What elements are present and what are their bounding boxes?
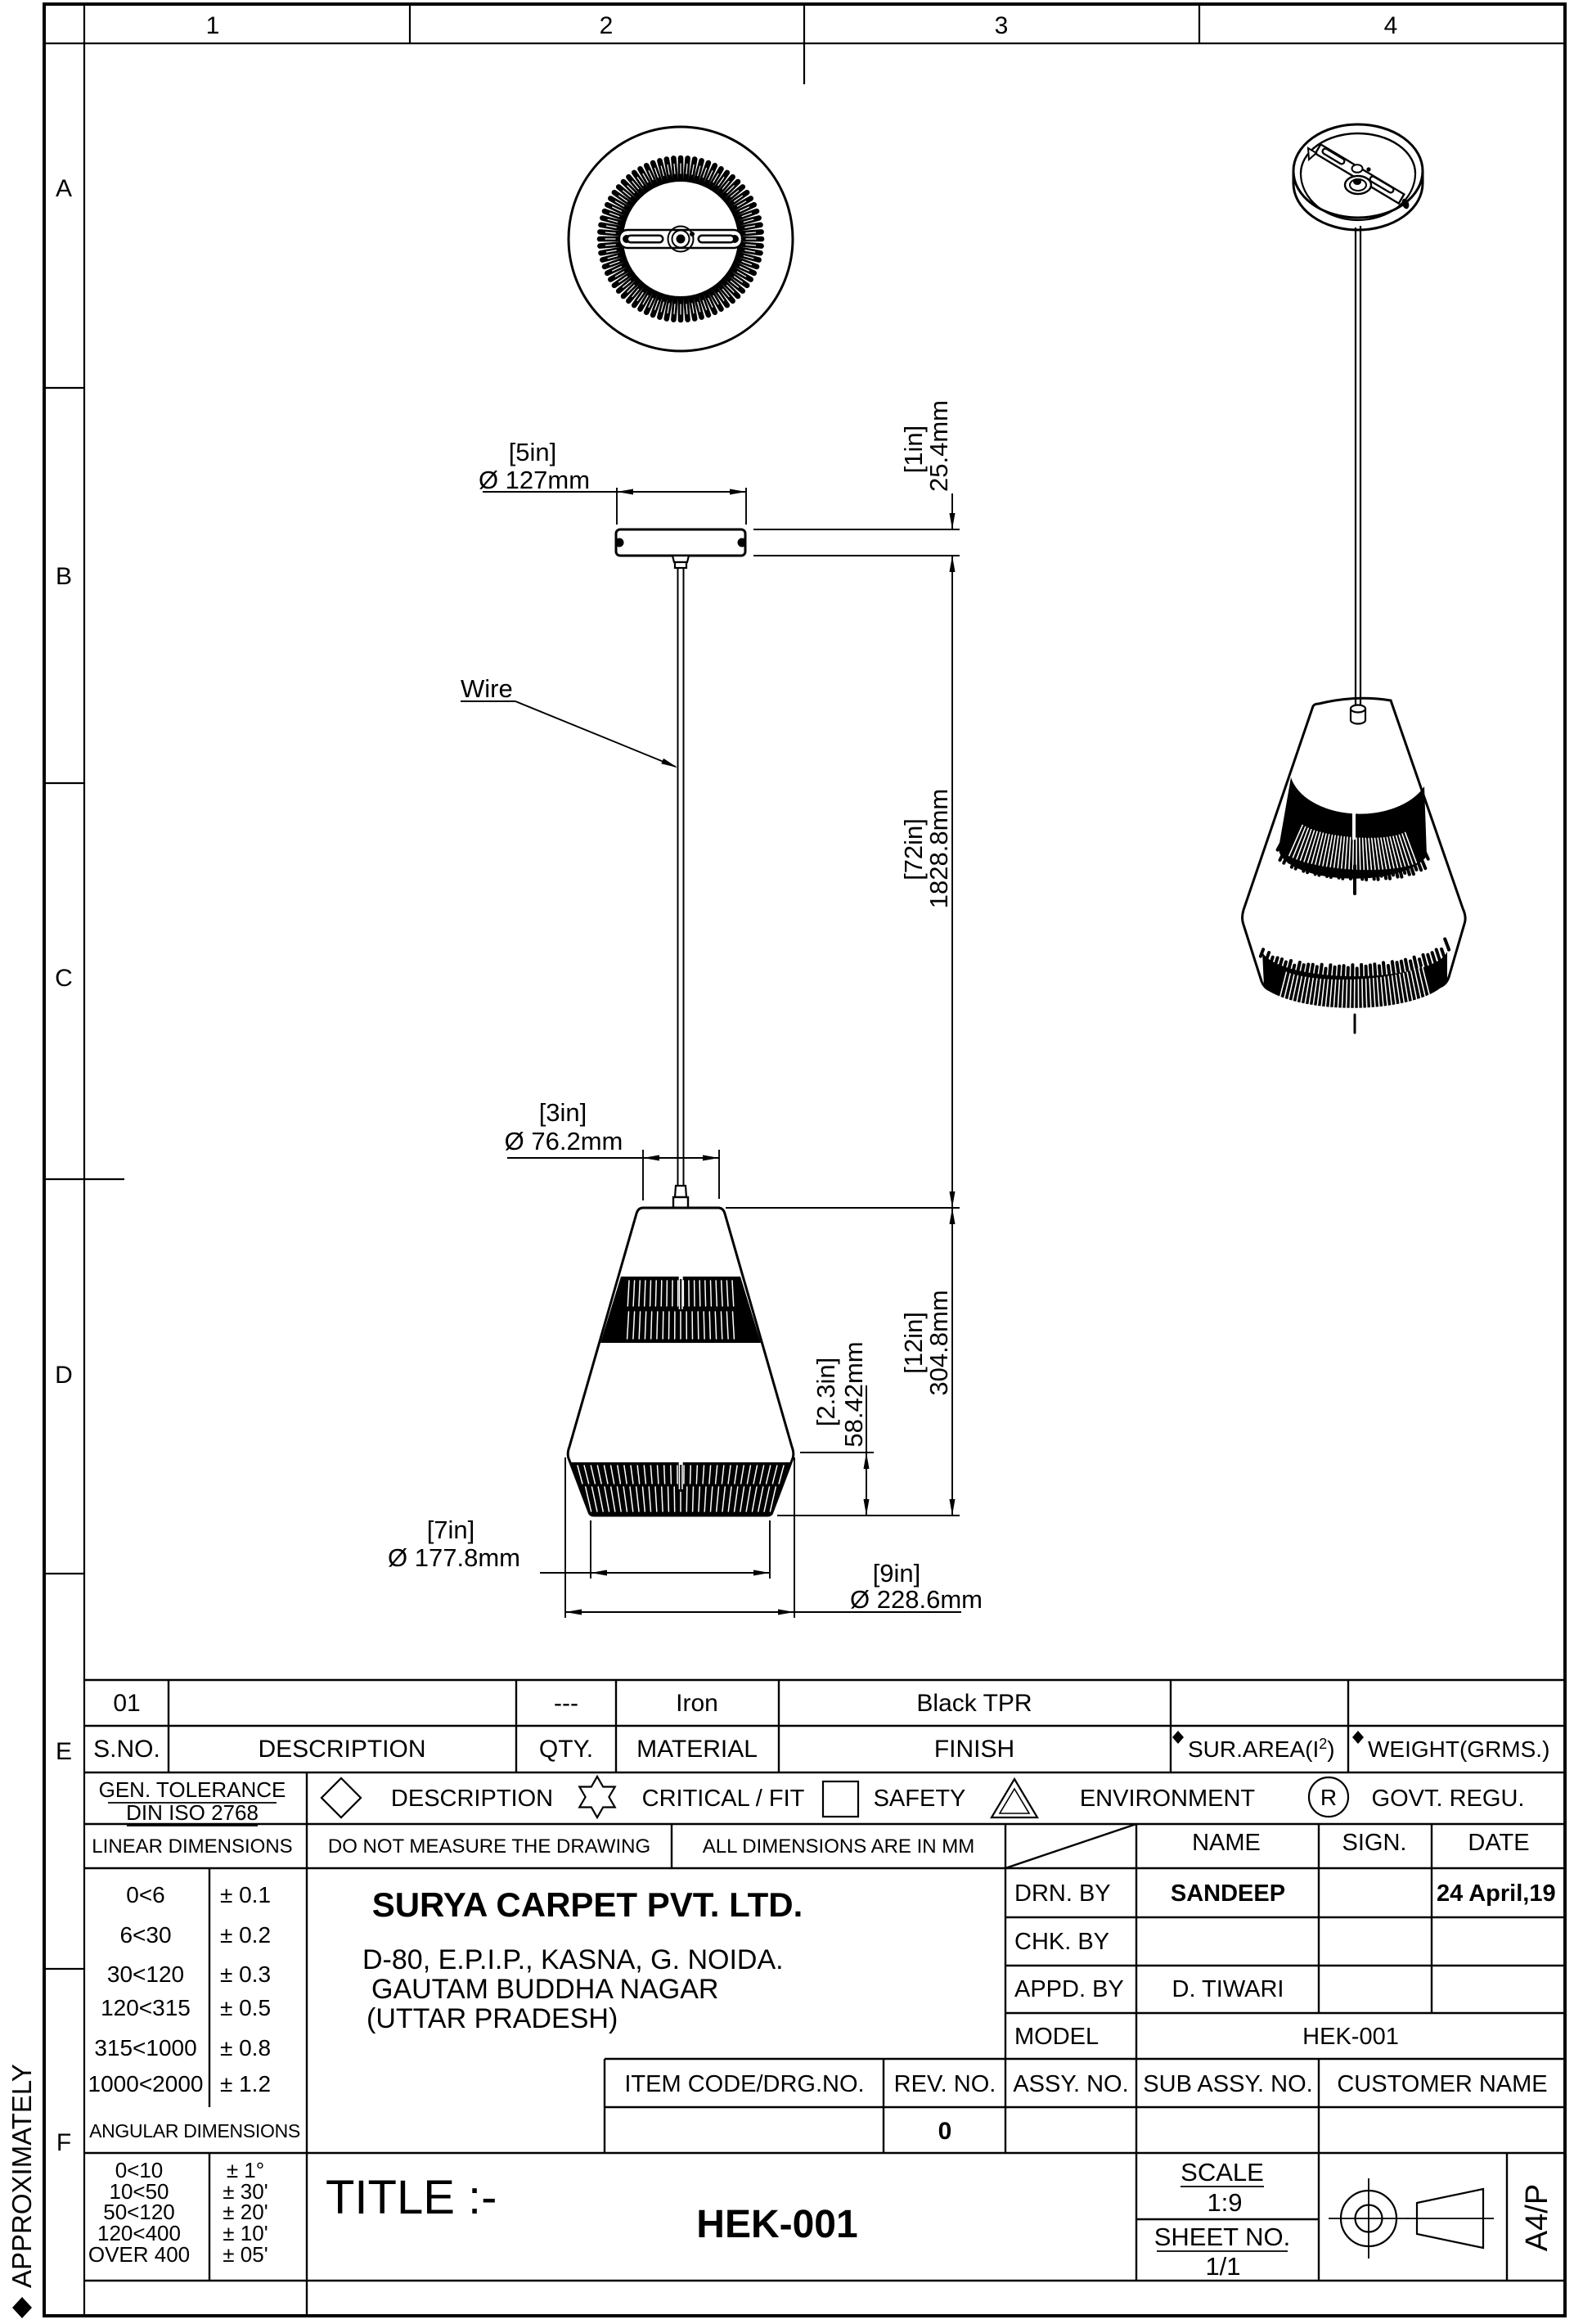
svg-text:R: R <box>1320 1785 1337 1810</box>
svg-text:1:9: 1:9 <box>1207 2188 1242 2217</box>
svg-text:1000<2000: 1000<2000 <box>88 2071 204 2097</box>
svg-text:± 1.2: ± 1.2 <box>220 2071 271 2097</box>
svg-text:GEN. TOLERANCE: GEN. TOLERANCE <box>99 1777 286 1802</box>
svg-text:LINEAR DIMENSIONS: LINEAR DIMENSIONS <box>92 1835 292 1858</box>
svg-text:---: --- <box>554 1690 578 1717</box>
svg-text:DESCRIPTION: DESCRIPTION <box>391 1786 553 1812</box>
svg-text:GAUTAM BUDDHA NAGAR: GAUTAM BUDDHA NAGAR <box>371 1974 718 2005</box>
svg-text:CUSTOMER NAME: CUSTOMER NAME <box>1337 2071 1547 2097</box>
svg-text:WEIGHT(GRMS.): WEIGHT(GRMS.) <box>1368 1736 1549 1762</box>
svg-text:DRN. BY: DRN. BY <box>1014 1880 1111 1907</box>
svg-text:Wire: Wire <box>461 674 513 703</box>
svg-text:± 05': ± 05' <box>223 2242 268 2267</box>
svg-text:CRITICAL / FIT: CRITICAL / FIT <box>642 1786 805 1812</box>
svg-text:SUR.AREA(I2): SUR.AREA(I2) <box>1188 1736 1335 1762</box>
svg-text:MODEL: MODEL <box>1014 2024 1099 2050</box>
svg-text:304.8mm: 304.8mm <box>924 1290 953 1395</box>
svg-text:ASSY. NO.: ASSY. NO. <box>1013 2071 1128 2097</box>
svg-text:[9in]: [9in] <box>873 1559 921 1588</box>
svg-text:SCALE: SCALE <box>1181 2158 1264 2187</box>
svg-text:01: 01 <box>113 1690 140 1717</box>
svg-text:Iron: Iron <box>676 1690 718 1717</box>
svg-text:30<120: 30<120 <box>107 1961 184 1987</box>
svg-text:GOVT. REGU.: GOVT. REGU. <box>1372 1786 1525 1812</box>
svg-text:SHEET NO.: SHEET NO. <box>1154 2223 1291 2251</box>
svg-text:Black TPR: Black TPR <box>916 1690 1032 1717</box>
svg-text:Ø 177.8mm: Ø 177.8mm <box>388 1543 520 1572</box>
svg-text:QTY.: QTY. <box>539 1736 593 1763</box>
svg-text:B: B <box>56 563 72 590</box>
svg-text:[5in]: [5in] <box>509 438 557 466</box>
svg-text:0<6: 0<6 <box>126 1882 165 1907</box>
svg-text:CHK. BY: CHK. BY <box>1014 1929 1109 1955</box>
svg-text:F: F <box>56 2129 71 2156</box>
svg-text:SAFETY: SAFETY <box>874 1786 966 1812</box>
svg-text:24 April,19: 24 April,19 <box>1437 1880 1556 1907</box>
svg-text:[12in]: [12in] <box>899 1312 928 1374</box>
svg-text:[2.3in]: [2.3in] <box>812 1358 840 1426</box>
svg-text:FINISH: FINISH <box>934 1736 1014 1763</box>
svg-text:3: 3 <box>995 12 1009 39</box>
svg-text:Ø 127mm: Ø 127mm <box>479 466 590 494</box>
svg-text:ANGULAR DIMENSIONS: ANGULAR DIMENSIONS <box>89 2120 300 2142</box>
svg-text:4: 4 <box>1384 12 1398 39</box>
svg-text:± 0.3: ± 0.3 <box>220 1961 271 1987</box>
svg-text:1828.8mm: 1828.8mm <box>924 789 953 908</box>
svg-text:ITEM CODE/DRG.NO.: ITEM CODE/DRG.NO. <box>624 2071 864 2097</box>
svg-text:25.4mm: 25.4mm <box>924 400 953 492</box>
svg-text:D-80, E.P.I.P., KASNA, G. NOID: D-80, E.P.I.P., KASNA, G. NOIDA. <box>362 1944 784 1975</box>
svg-text:A: A <box>56 175 72 202</box>
svg-text:± 0.5: ± 0.5 <box>220 1995 271 2020</box>
svg-text:DO NOT MEASURE THE DRAWING: DO NOT MEASURE THE DRAWING <box>328 1835 650 1858</box>
svg-text:TITLE :-: TITLE :- <box>326 2171 497 2224</box>
svg-text:SIGN.: SIGN. <box>1342 1830 1407 1856</box>
svg-text:SANDEEP: SANDEEP <box>1171 1880 1285 1907</box>
svg-text:SUB ASSY. NO.: SUB ASSY. NO. <box>1143 2071 1312 2097</box>
svg-text:120<315: 120<315 <box>101 1995 191 2020</box>
svg-text:[7in]: [7in] <box>427 1516 475 1544</box>
svg-text:DESCRIPTION: DESCRIPTION <box>258 1736 425 1763</box>
svg-text:OVER 400: OVER 400 <box>88 2242 190 2267</box>
svg-text:Ø 228.6mm: Ø 228.6mm <box>850 1585 983 1614</box>
svg-text:D: D <box>55 1362 73 1389</box>
svg-text:2: 2 <box>600 12 614 39</box>
svg-text:APPD. BY: APPD. BY <box>1014 1976 1124 2002</box>
svg-text:[72in]: [72in] <box>899 818 928 881</box>
svg-text:± 0.2: ± 0.2 <box>220 1922 271 1948</box>
svg-text:58.42mm: 58.42mm <box>839 1341 868 1447</box>
svg-text:SURYA CARPET PVT. LTD.: SURYA CARPET PVT. LTD. <box>372 1885 803 1924</box>
svg-text:DIN ISO 2768: DIN ISO 2768 <box>126 1800 259 1825</box>
svg-text:A4/P: A4/P <box>1520 2184 1554 2251</box>
svg-text:REV. NO.: REV. NO. <box>894 2071 996 2097</box>
svg-text:Ø 76.2mm: Ø 76.2mm <box>505 1127 623 1155</box>
svg-text:S.NO.: S.NO. <box>93 1736 160 1763</box>
svg-text:± 0.1: ± 0.1 <box>220 1882 271 1907</box>
svg-text:NAME: NAME <box>1192 1830 1261 1856</box>
svg-text:DATE: DATE <box>1468 1830 1529 1856</box>
svg-text:6<30: 6<30 <box>119 1922 171 1948</box>
svg-text:APPROXIMATELY: APPROXIMATELY <box>7 2064 37 2288</box>
svg-text:[1in]: [1in] <box>899 426 928 474</box>
svg-text:D. TIWARI: D. TIWARI <box>1172 1976 1284 2002</box>
svg-text:MATERIAL: MATERIAL <box>636 1736 758 1763</box>
svg-text:1/1: 1/1 <box>1205 2252 1240 2281</box>
svg-text:0: 0 <box>938 2118 952 2145</box>
svg-text:ALL DIMENSIONS ARE IN MM: ALL DIMENSIONS ARE IN MM <box>703 1835 975 1858</box>
svg-text:[3in]: [3in] <box>539 1098 587 1127</box>
svg-text:315<1000: 315<1000 <box>94 2035 196 2061</box>
svg-text:ENVIRONMENT: ENVIRONMENT <box>1080 1786 1256 1812</box>
svg-text:HEK-001: HEK-001 <box>1302 2024 1399 2050</box>
svg-text:HEK-001: HEK-001 <box>696 2203 857 2246</box>
svg-text:1: 1 <box>206 12 220 39</box>
svg-text:E: E <box>56 1738 72 1765</box>
svg-text:± 0.8: ± 0.8 <box>220 2035 271 2061</box>
svg-text:(UTTAR PRADESH): (UTTAR PRADESH) <box>367 2003 618 2034</box>
svg-text:C: C <box>55 965 73 992</box>
